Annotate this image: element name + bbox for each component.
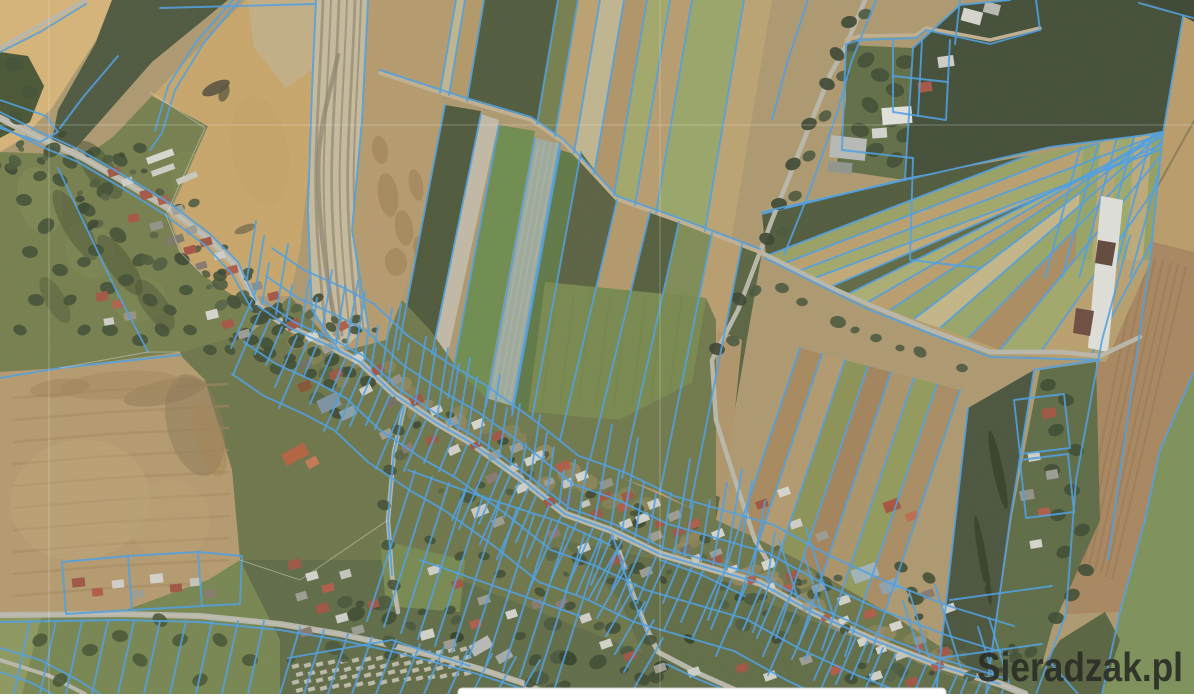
svg-text:Sieradzak.pl: Sieradzak.pl xyxy=(977,644,1183,690)
